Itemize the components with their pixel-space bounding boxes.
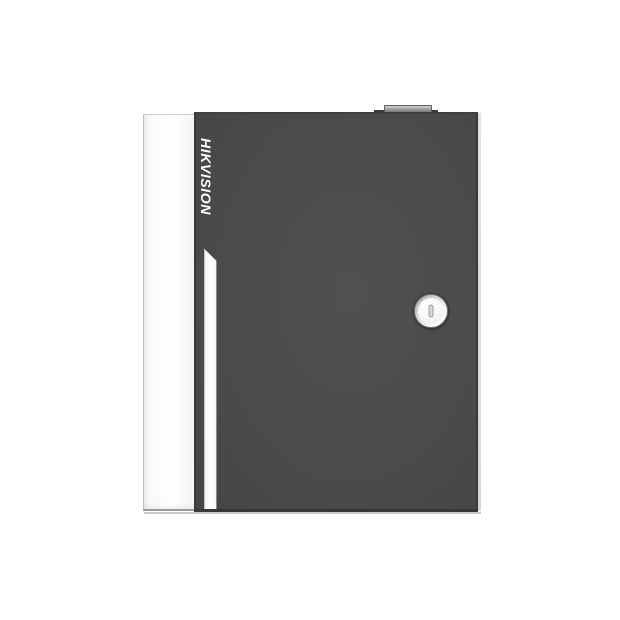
cabinet-bottom-seam (144, 512, 481, 514)
accent-stripe (204, 248, 217, 509)
enclosure-front-door: HIKVISION (194, 112, 478, 512)
door-right-edge-highlight (478, 113, 481, 511)
enclosure-side-panel (143, 114, 194, 511)
lock-slot (429, 305, 434, 318)
keyhole-lock-icon (414, 294, 448, 328)
brand-logo: HIKVISION (197, 138, 214, 215)
product-photo: HIKVISION (0, 0, 620, 620)
